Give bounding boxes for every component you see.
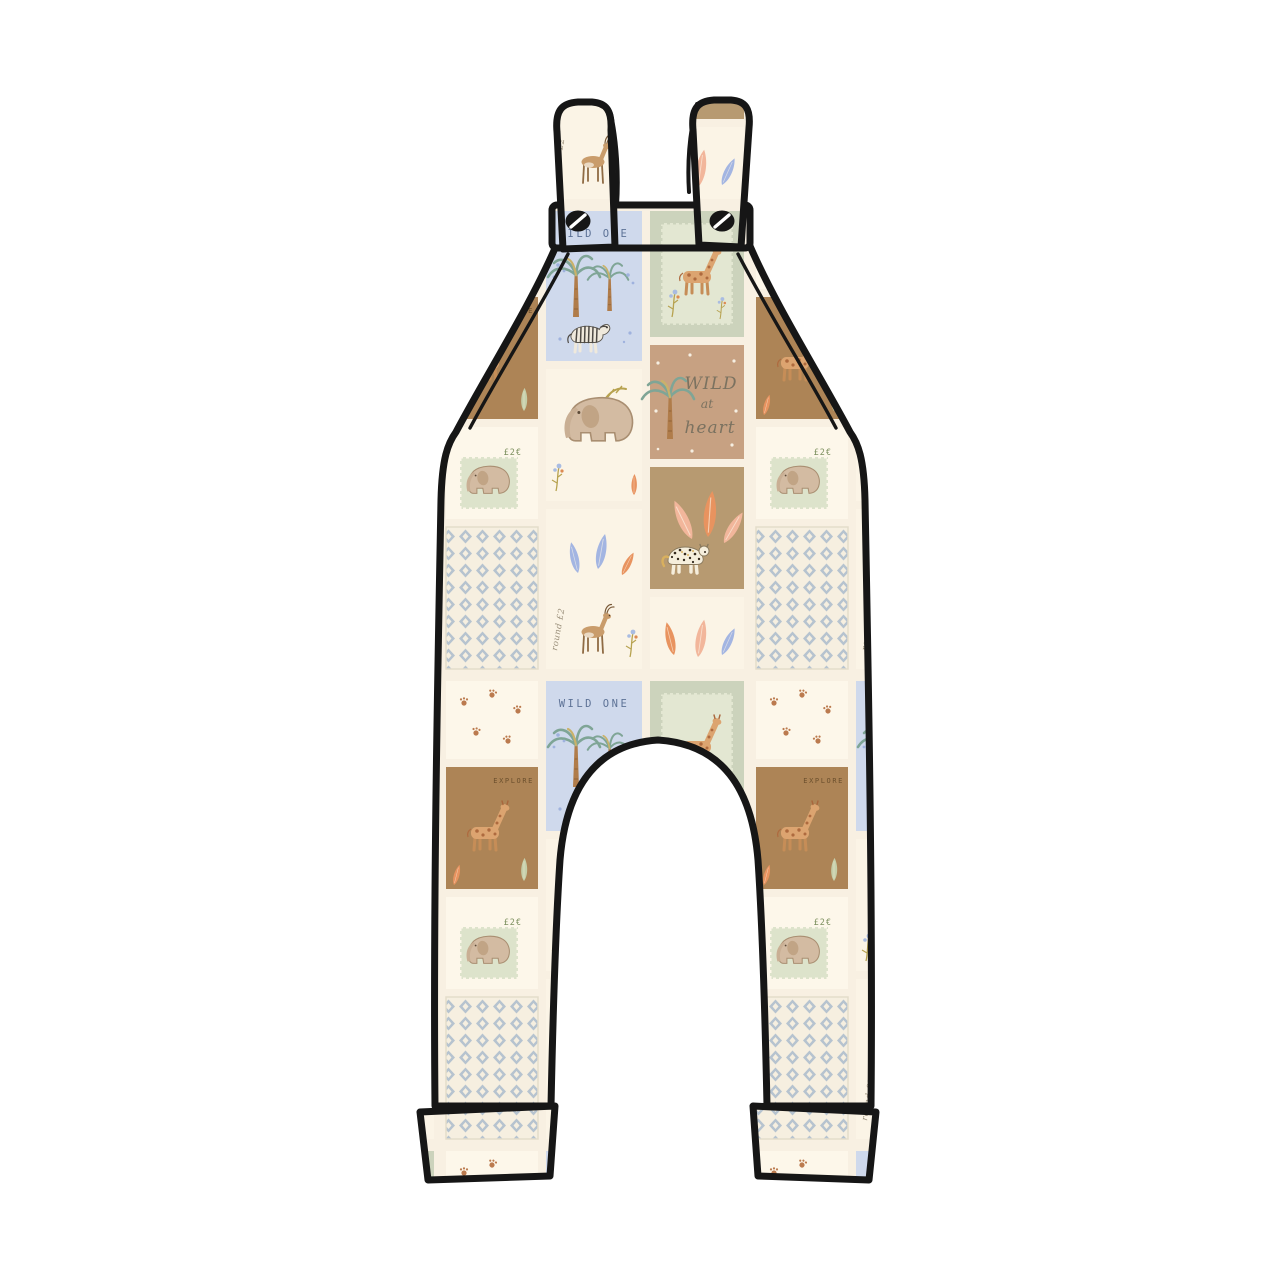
product-mockup-canvas: EXPLORE £2€ WILD ONE <box>0 0 1280 1280</box>
dungarees-garment <box>420 100 876 1180</box>
right-cuff[interactable] <box>753 1106 876 1180</box>
left-cuff[interactable] <box>420 1106 555 1180</box>
left-button[interactable] <box>566 211 591 232</box>
right-button[interactable] <box>710 211 735 232</box>
dungarees-illustration: EXPLORE £2€ WILD ONE <box>0 0 1280 1280</box>
